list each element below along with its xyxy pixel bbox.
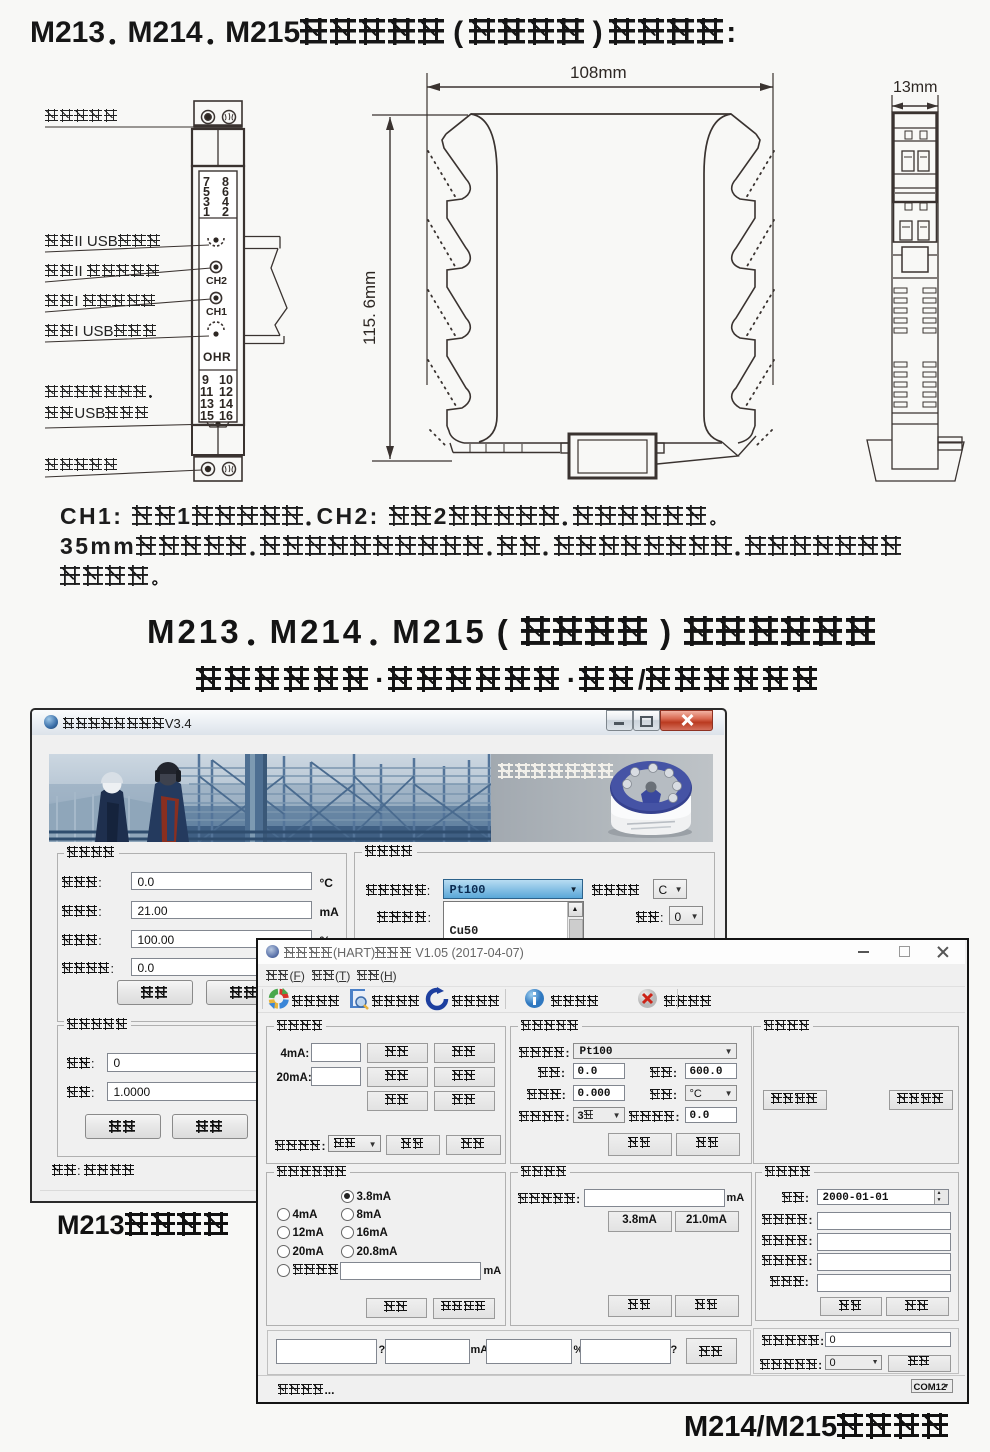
svg-text:1: 1 [203,205,210,219]
svg-text:CH1: CH1 [206,306,227,318]
svg-text:15: 15 [200,409,214,423]
svg-text:OHR: OHR [203,350,231,364]
svg-text:CH2: CH2 [206,275,227,287]
svg-text:16: 16 [219,409,233,423]
svg-text:108mm: 108mm [570,63,627,82]
svg-text:13mm: 13mm [893,79,937,96]
svg-text:2: 2 [222,205,229,219]
svg-text:115. 6mm: 115. 6mm [360,271,379,345]
